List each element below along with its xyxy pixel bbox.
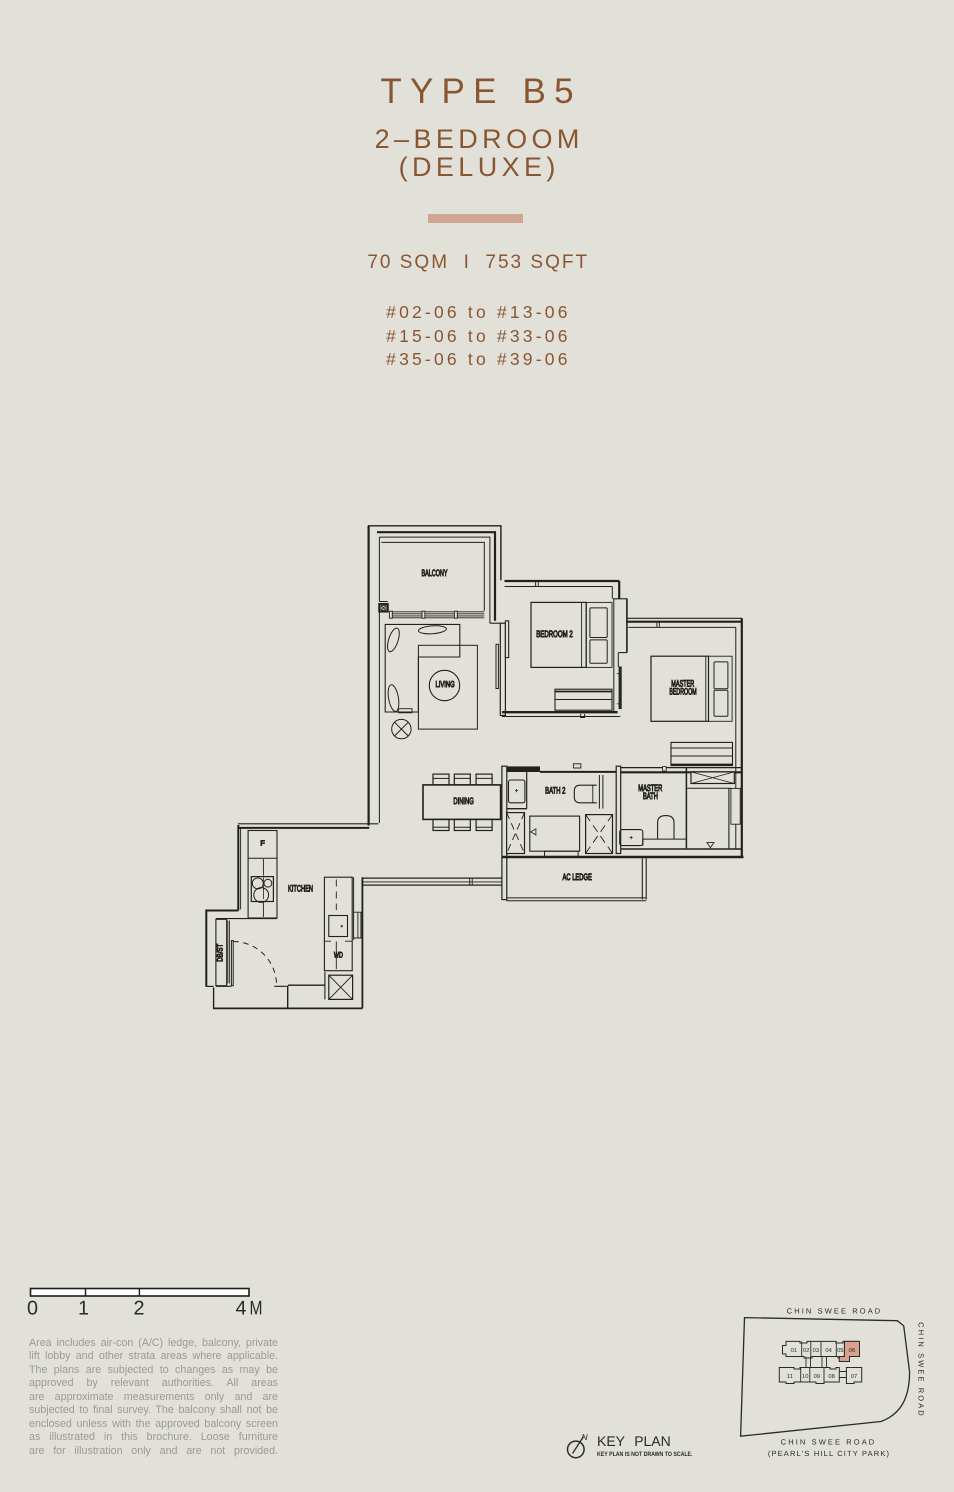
- svg-text:4: 4: [235, 1298, 246, 1320]
- svg-text:2: 2: [133, 1298, 144, 1320]
- svg-text:02: 02: [803, 1347, 809, 1354]
- svg-text:F: F: [260, 839, 265, 848]
- svg-text:04: 04: [825, 1347, 832, 1354]
- svg-text:CHIN SWEE ROAD: CHIN SWEE ROAD: [787, 1307, 883, 1316]
- svg-text:AC LEDGE: AC LEDGE: [563, 872, 592, 882]
- svg-text:BEDROOM 2: BEDROOM 2: [536, 629, 573, 639]
- svg-text:BATH 2: BATH 2: [545, 786, 565, 796]
- svg-text:03: 03: [813, 1347, 819, 1354]
- svg-text:BALCONY: BALCONY: [422, 568, 448, 578]
- svg-text:06: 06: [849, 1347, 855, 1354]
- svg-text:07: 07: [851, 1373, 857, 1380]
- svg-text:09: 09: [814, 1373, 820, 1380]
- svg-text:PLAN: PLAN: [634, 1433, 671, 1449]
- svg-text:KITCHEN: KITCHEN: [288, 884, 313, 894]
- svg-text:WD: WD: [334, 951, 343, 960]
- svg-text:05: 05: [837, 1347, 843, 1354]
- svg-text:KEY: KEY: [597, 1433, 626, 1449]
- svg-text:CHIN SWEE ROAD: CHIN SWEE ROAD: [916, 1322, 925, 1418]
- svg-text:LIVING: LIVING: [436, 679, 455, 689]
- svg-text:DINING: DINING: [453, 796, 474, 806]
- svg-text:1: 1: [78, 1298, 89, 1320]
- svg-text:N: N: [582, 1432, 589, 1442]
- svg-text:(PEARL'S HILL CITY PARK): (PEARL'S HILL CITY PARK): [768, 1449, 890, 1458]
- svg-text:M: M: [250, 1298, 263, 1320]
- svg-text:01: 01: [791, 1347, 797, 1354]
- svg-text:CHIN SWEE ROAD: CHIN SWEE ROAD: [781, 1438, 877, 1447]
- svg-text:BEDROOM: BEDROOM: [669, 687, 696, 697]
- svg-text:0: 0: [27, 1298, 38, 1320]
- svg-text:KEY PLAN IS NOT DRAWN TO SCALE: KEY PLAN IS NOT DRAWN TO SCALE.: [597, 1451, 693, 1458]
- svg-text:11: 11: [787, 1374, 793, 1380]
- svg-text:DB/ST: DB/ST: [215, 944, 224, 962]
- svg-text:BATH: BATH: [643, 791, 658, 801]
- svg-text:10: 10: [802, 1373, 808, 1380]
- svg-text:08: 08: [828, 1373, 834, 1380]
